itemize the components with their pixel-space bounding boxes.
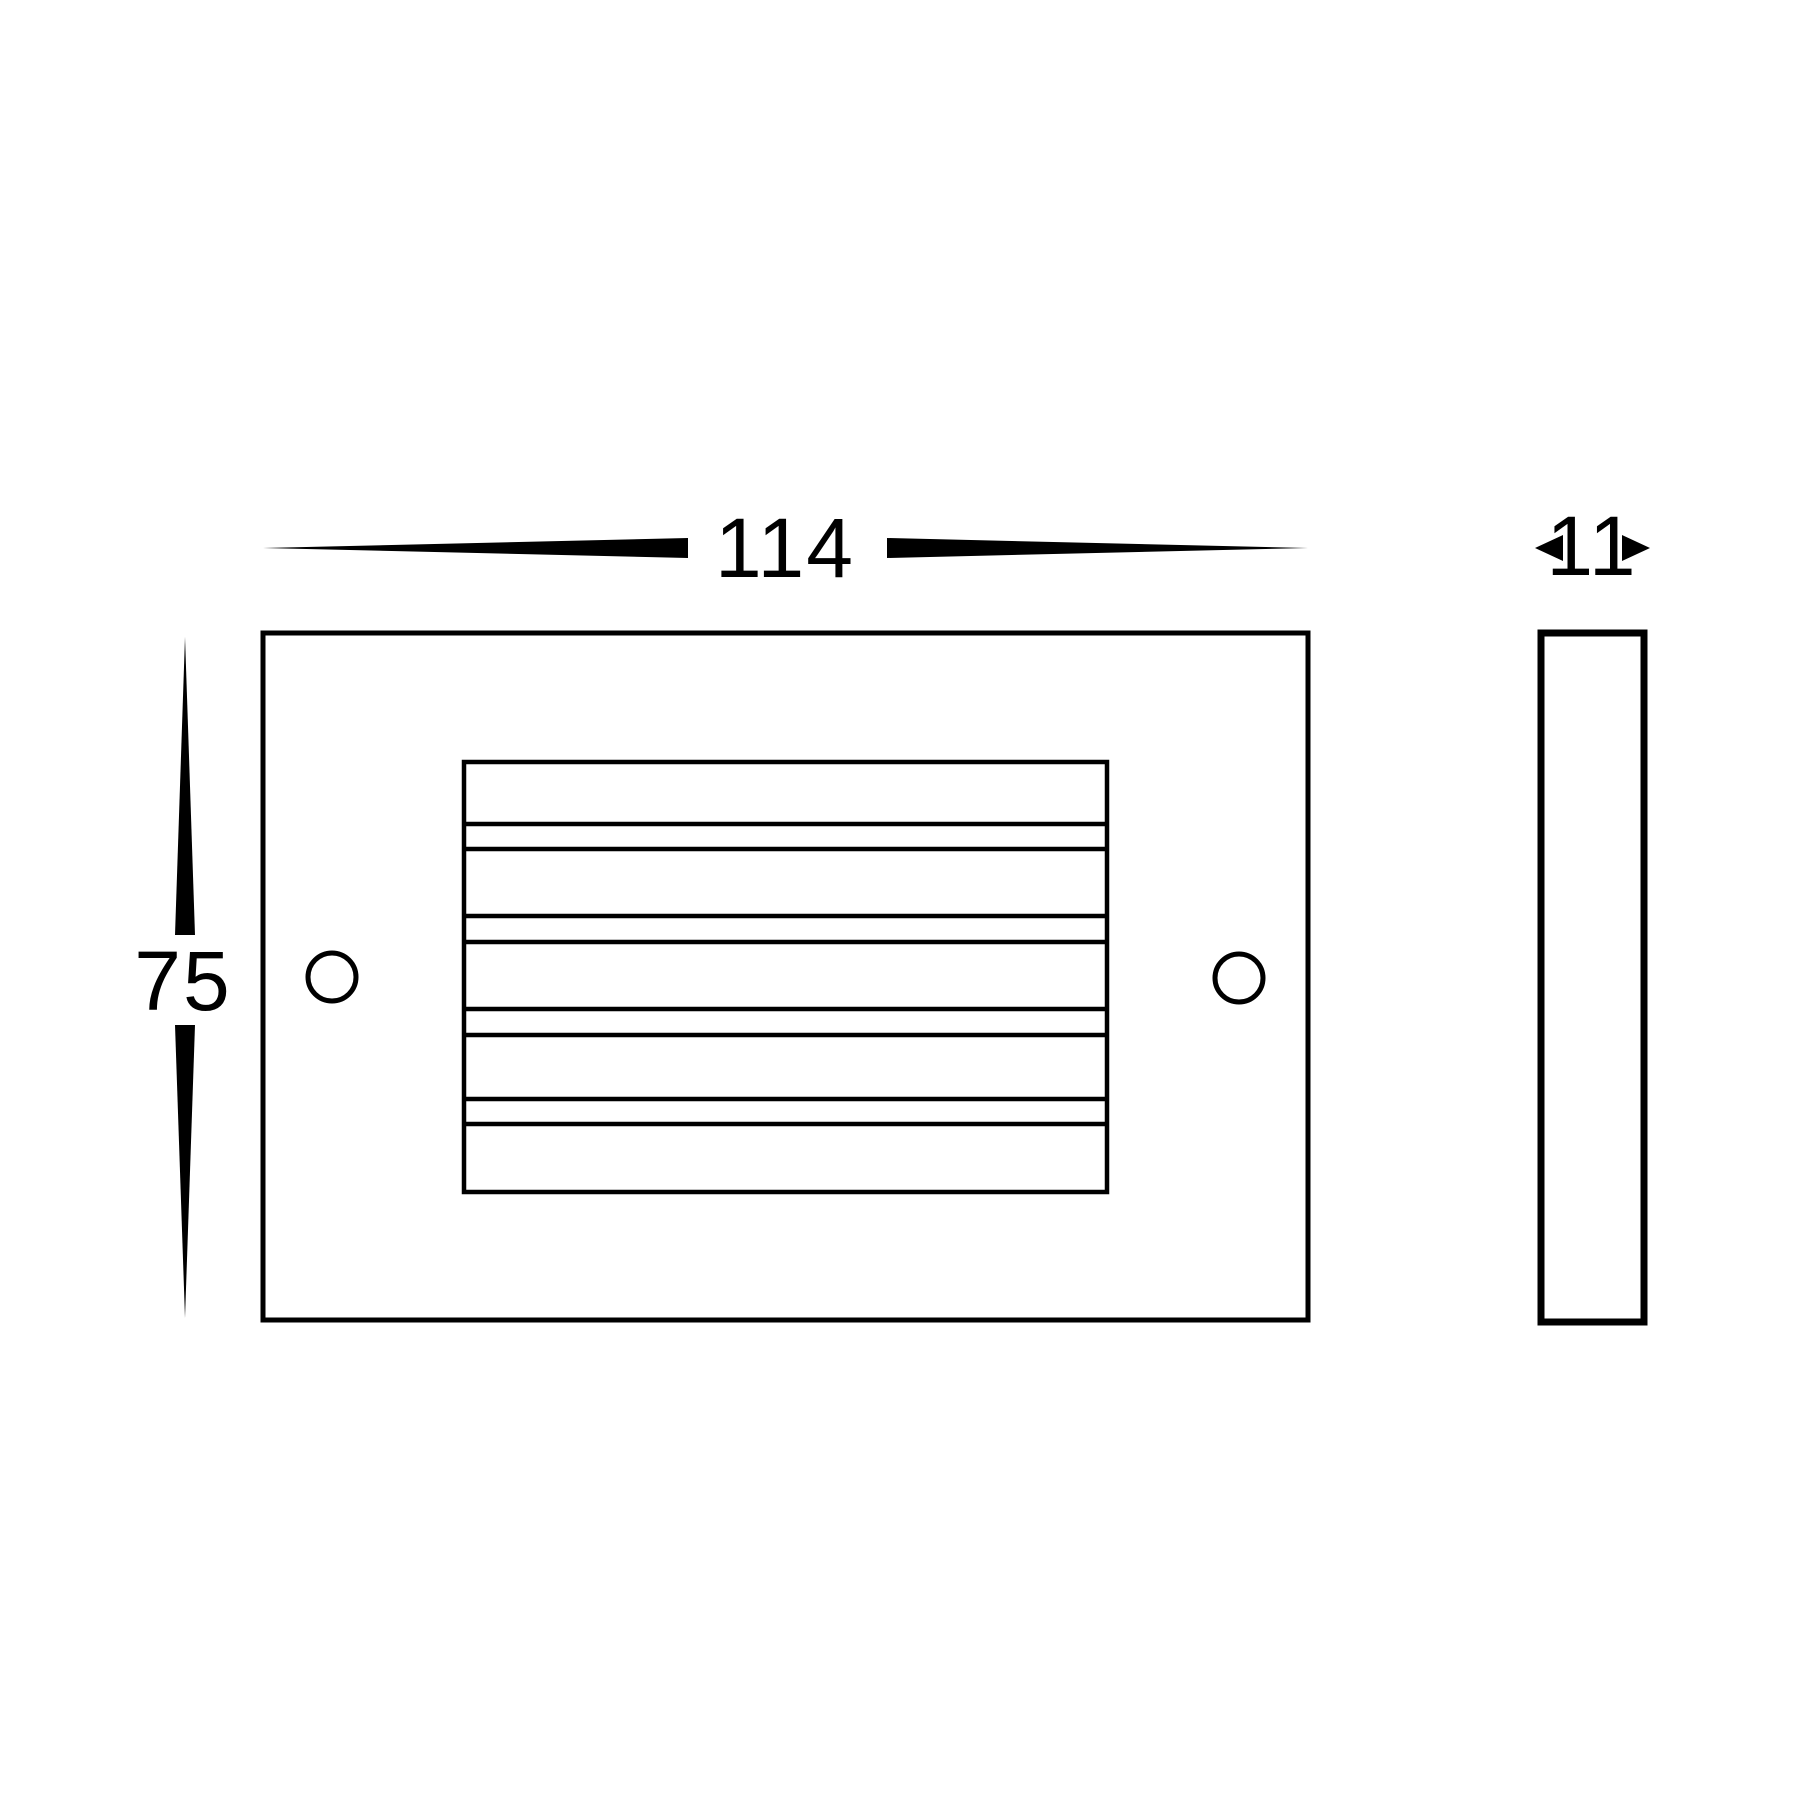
depth-dimension-label: 11 (1546, 499, 1637, 593)
side-profile-outline (1541, 633, 1644, 1322)
depth-dimension: 11 (1535, 499, 1650, 593)
height-dim-taper-bottom (175, 1025, 195, 1318)
front-plate-outline (263, 633, 1308, 1320)
screw-hole-right (1215, 954, 1263, 1002)
side-view (1541, 633, 1644, 1322)
louvre-panel-outline (464, 762, 1107, 1192)
width-dimension-label: 114 (715, 501, 855, 595)
width-dimension: 114 (263, 501, 1308, 595)
louvre-slat-lines (464, 824, 1107, 1124)
dimension-drawing: 114 75 11 (0, 0, 1800, 1800)
height-dim-taper-top (175, 637, 195, 935)
width-dim-taper-right (887, 538, 1308, 558)
front-view (263, 633, 1308, 1320)
drawing-canvas: 114 75 11 (0, 0, 1800, 1800)
screw-hole-left (308, 953, 356, 1001)
height-dimension: 75 (134, 637, 231, 1318)
width-dim-taper-left (263, 538, 688, 558)
height-dimension-label: 75 (134, 934, 231, 1028)
